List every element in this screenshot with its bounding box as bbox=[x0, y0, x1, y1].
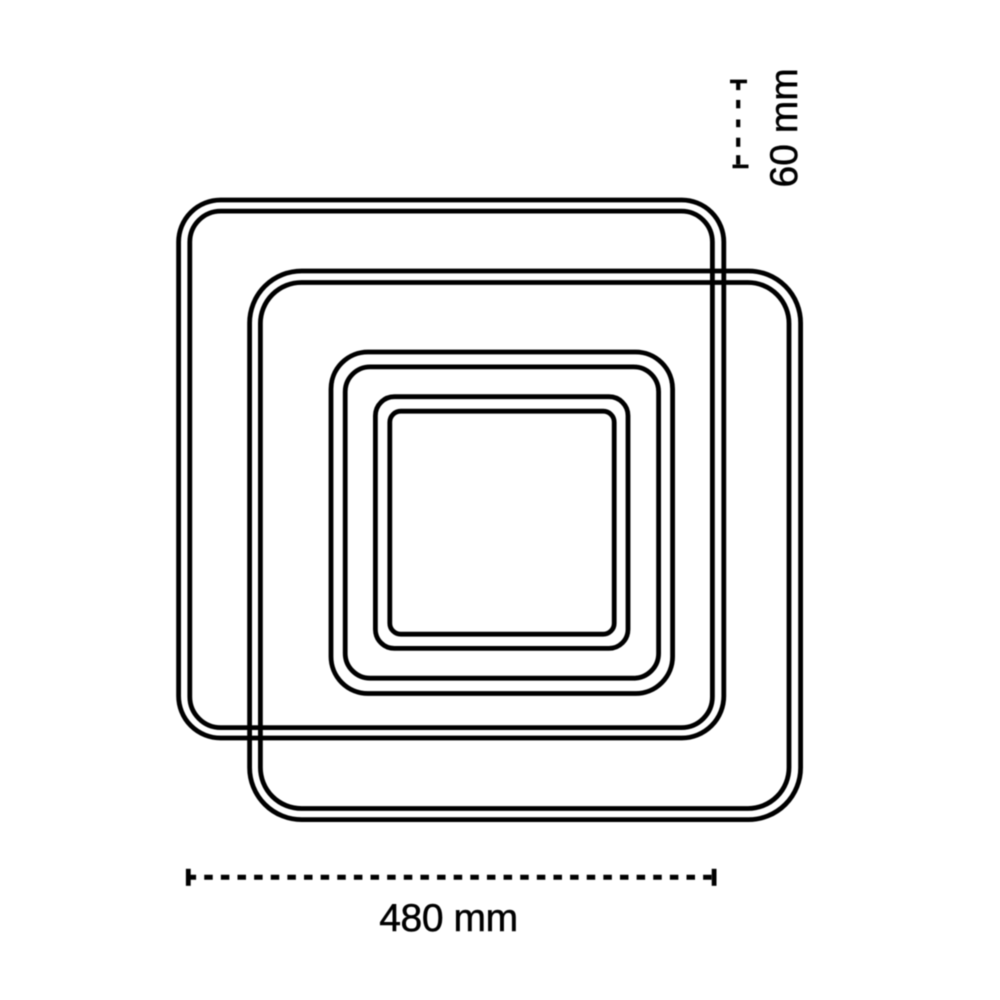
svg-text:480 mm: 480 mm bbox=[379, 897, 517, 940]
svg-text:60 mm: 60 mm bbox=[763, 68, 806, 187]
